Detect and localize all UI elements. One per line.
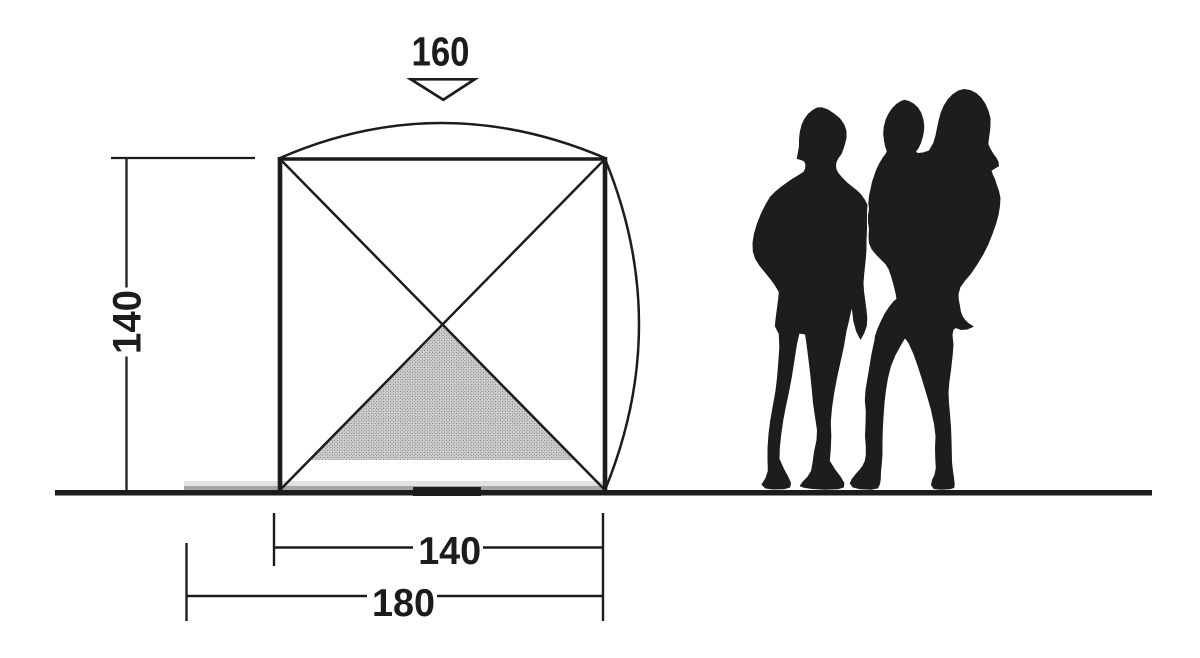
svg-text:140: 140 xyxy=(418,530,481,573)
svg-text:180: 180 xyxy=(372,582,435,625)
svg-text:160: 160 xyxy=(412,28,470,74)
svg-text:140: 140 xyxy=(106,290,150,354)
